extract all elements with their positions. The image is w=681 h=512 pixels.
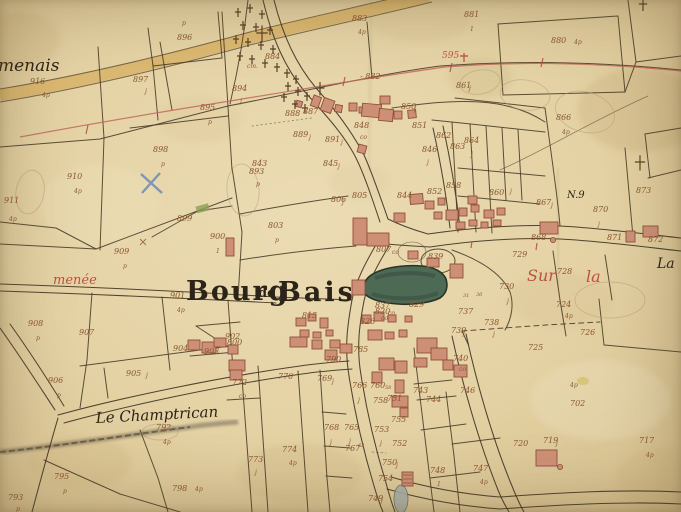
building-footprint — [340, 344, 352, 353]
building-footprint — [300, 330, 309, 337]
parcel-number: 4p — [357, 29, 366, 36]
building-footprint — [349, 103, 357, 111]
parcel-number: 720 — [513, 439, 528, 448]
building-footprint — [481, 222, 488, 228]
parcel-number: 870 — [593, 205, 608, 214]
parcel-number: 862 — [436, 131, 451, 140]
yellow-stain — [577, 377, 589, 385]
building-footprint — [320, 318, 328, 328]
parcel-number: 4p — [573, 39, 582, 46]
parcel-number: 746 — [460, 386, 475, 395]
parcel-number: p — [36, 335, 40, 342]
parcel-number: 765 — [344, 423, 359, 432]
parcel-number: 795 — [54, 472, 69, 481]
parcel-number: co — [392, 249, 399, 256]
building-footprint — [379, 108, 394, 121]
parcel-number: 31 — [463, 293, 469, 299]
building-footprint — [471, 205, 479, 212]
parcel-number: 906 — [48, 376, 63, 385]
parcel-number: 4p — [41, 92, 50, 99]
building-footprint — [385, 332, 394, 339]
parcel-number: 845 — [323, 159, 338, 168]
parcel-number: p — [123, 263, 127, 270]
parcel-number: p — [16, 506, 20, 512]
building-footprint — [380, 96, 390, 104]
parcel-number: 897 — [133, 75, 149, 84]
parcel-number: 4p — [288, 460, 297, 467]
parcel-number: 844 — [397, 191, 412, 200]
building-footprint — [188, 340, 200, 350]
parcel-number: 863 — [450, 142, 465, 151]
parcel-number: 848 — [354, 121, 369, 130]
parcel-number: 895 — [200, 103, 215, 112]
place-label: Sur — [527, 266, 557, 285]
place-label: Bais — [278, 277, 356, 308]
parcel-number: 751 — [387, 394, 402, 403]
building-footprint — [313, 332, 321, 338]
building-dot — [550, 237, 555, 242]
parcel-number: 36 — [476, 292, 483, 298]
parcel-number: 748 — [430, 466, 445, 475]
parcel-number: 766 — [352, 381, 367, 390]
parcel-number: p — [63, 488, 67, 495]
parcel-number: 884 — [265, 52, 280, 61]
building-footprint — [394, 213, 405, 222]
parcel-number: 829 — [409, 300, 424, 309]
building-footprint — [368, 330, 382, 340]
parcel-number: 900 — [210, 232, 225, 241]
parcel-number: 1 — [470, 26, 474, 33]
parcel-number: 889 — [293, 130, 308, 139]
parcel-number: 726 — [580, 328, 595, 337]
parcel-number: 904 — [173, 344, 188, 353]
building-footprint — [395, 361, 407, 373]
parcel-number: 747 — [473, 464, 489, 473]
parcel-number: p — [256, 181, 260, 188]
building-footprint — [379, 358, 394, 370]
parcel-number: 826 — [360, 317, 375, 326]
parcel-number: 888 — [285, 109, 300, 118]
parcel-number: 768 — [324, 423, 339, 432]
parcel-number: 702 — [570, 399, 585, 408]
parcel-number: p — [208, 119, 212, 126]
place-label: menée — [53, 273, 97, 288]
parcel-number: 58 — [385, 385, 391, 391]
building-footprint — [493, 220, 501, 226]
parcel-number: 839 — [428, 252, 443, 261]
building-footprint — [434, 212, 442, 219]
parcel-number: p — [182, 20, 186, 27]
building-footprint — [484, 210, 494, 218]
parcel-number: 4p — [73, 188, 82, 195]
parcel-number: 754 — [378, 474, 393, 483]
parcel-number: 905 — [126, 369, 141, 378]
building-footprint — [290, 337, 307, 347]
parcel-number: 758 — [373, 396, 388, 405]
parcel-number: co — [239, 393, 246, 400]
place-label: 595 — [442, 51, 459, 61]
parcel-number: 752 — [392, 439, 407, 448]
parcel-number: 909 — [114, 247, 129, 256]
parcel-number: 774 — [282, 445, 297, 454]
building-footprint — [394, 111, 402, 119]
building-footprint — [229, 360, 245, 371]
parcel-number: p — [161, 161, 165, 168]
parcel-number: 846 — [422, 145, 437, 154]
parcel-number: 910 — [67, 172, 82, 181]
parcel-number: 750 — [382, 458, 397, 467]
parcel-number: 4p — [564, 313, 573, 320]
parcel-number: p — [57, 392, 61, 399]
parcel-number: 815 — [302, 311, 317, 320]
parcel-number: 911 — [4, 196, 19, 205]
small-pond — [394, 485, 408, 512]
parcel-number: 896 — [177, 33, 192, 42]
parcel-number: 4p — [645, 452, 654, 459]
building-footprint — [334, 104, 342, 112]
parcel-number: 891 — [325, 135, 340, 144]
parcel-number: 867 — [536, 198, 552, 207]
parcel-number: 881 — [464, 10, 479, 19]
building-footprint — [414, 358, 427, 367]
parcel-number: 898 — [153, 145, 168, 154]
parcel-number: 901 — [170, 291, 185, 300]
parcel-number: 880 — [551, 36, 566, 45]
parcel-number: 866 — [556, 113, 571, 122]
parcel-number: 4p — [162, 439, 171, 446]
building-footprint — [497, 208, 505, 215]
parcel-number: 785 — [353, 345, 368, 354]
parcel-number: 860 — [489, 188, 504, 197]
parcel-number: 743 — [413, 386, 428, 395]
place-label: de — [258, 286, 275, 301]
parcel-number: 871 — [607, 233, 622, 242]
building-footprint — [459, 208, 467, 216]
parcel-number: 724 — [556, 300, 571, 309]
parcel-number: 729 — [512, 250, 527, 259]
parcel-number: 807 — [376, 245, 392, 254]
building-footprint — [446, 210, 458, 220]
parcel-number: 4p — [194, 486, 203, 493]
place-label: la — [586, 267, 601, 286]
building-footprint — [468, 196, 477, 204]
parcel-number: 772 — [232, 378, 247, 387]
parcel-number: 770 — [278, 372, 293, 381]
parcel-number: 1 — [437, 481, 441, 488]
building-footprint — [443, 360, 453, 370]
parcel-number: 769 — [317, 374, 332, 383]
parcel-number: 760 — [370, 381, 385, 390]
parcel-number: 4p — [561, 129, 570, 136]
building-footprint — [431, 348, 447, 360]
parcel-number: - 882 — [360, 72, 381, 81]
parcel-number: 730 — [499, 282, 514, 291]
parcel-number: 792 — [156, 423, 171, 432]
parcel-number: 773 — [248, 455, 263, 464]
parcel-number: 893 — [249, 167, 264, 176]
parcel-number: 737 — [458, 307, 474, 316]
parcel-number: 872 — [648, 235, 663, 244]
parcel-number: 899 — [177, 214, 192, 223]
parcel-number: 908 — [28, 319, 43, 328]
parcel-number: 4p — [8, 216, 17, 223]
building-footprint — [425, 201, 434, 209]
parcel-number: 728 — [557, 267, 572, 276]
building-footprint — [399, 330, 407, 337]
parcel-number: 4p — [569, 382, 578, 389]
parcel-number: 753 — [374, 425, 389, 434]
parcel-number: 864 — [464, 136, 479, 145]
parcel-number: co — [388, 310, 395, 317]
building-footprint — [536, 450, 557, 466]
place-label: cm. — [247, 63, 258, 70]
place-label: 916 — [30, 77, 45, 86]
parcel-number: 725 — [528, 343, 543, 352]
cadastral-map-sheet: 4p897j896p895p898p9104p9114p909p89990019… — [0, 0, 681, 512]
place-label: N.9 — [566, 190, 585, 201]
parcel-number: 803 — [268, 221, 283, 230]
parcel-number: 790 — [326, 355, 341, 364]
parcel-number: 806 — [331, 195, 346, 204]
parcel-number: 805 — [352, 191, 367, 200]
building-footprint — [469, 220, 477, 226]
building-footprint — [326, 330, 333, 336]
building-footprint — [226, 238, 234, 256]
parcel-number: 798 — [172, 484, 187, 493]
parcel-number: 858 — [446, 181, 461, 190]
parcel-number: 793 — [8, 493, 23, 502]
building-footprint — [395, 380, 404, 393]
parcel-number: 4p — [176, 307, 185, 314]
building-footprint — [330, 340, 340, 348]
building-footprint — [408, 251, 418, 259]
parcel-number: 873 — [636, 186, 651, 195]
parcel-number: 1 — [216, 248, 220, 255]
building-footprint — [438, 198, 445, 205]
parcel-number: 907 — [79, 328, 95, 337]
building-footprint — [405, 316, 412, 322]
parcel-number: 62 — [358, 443, 364, 449]
place-label: La — [656, 256, 675, 272]
map-canvas: 4p897j896p895p898p9104p9114p909p89990019… — [0, 0, 681, 512]
building-footprint — [450, 264, 463, 278]
building-footprint — [626, 231, 635, 242]
parcel-number: 738 — [484, 318, 499, 327]
parcel-number: co — [360, 134, 367, 141]
parcel-number: 887 — [303, 107, 319, 116]
parcel-number: 894 — [232, 84, 247, 93]
parcel-number: 868 — [531, 233, 546, 242]
parcel-number: 903 — [204, 347, 219, 356]
building-dot — [557, 464, 562, 469]
parcel-number: 883 — [352, 14, 367, 23]
building-footprint — [312, 340, 322, 349]
parcel-number: p — [275, 237, 279, 244]
parcel-number: 800 — [227, 338, 242, 347]
parcel-number: co — [459, 366, 466, 373]
parcel-number: 740 — [453, 354, 468, 363]
parcel-number: 755 — [391, 415, 406, 424]
parcel-number: 851 — [412, 121, 427, 130]
building-footprint — [357, 144, 367, 154]
parcel-number: 4p — [479, 479, 488, 486]
building-footprint — [456, 222, 465, 229]
parcel-number: 852 — [427, 187, 442, 196]
parcel-number: 717 — [639, 436, 655, 445]
parcel-number: 744 — [426, 395, 441, 404]
building-footprint — [353, 218, 367, 245]
place-label: menais — [0, 56, 60, 76]
